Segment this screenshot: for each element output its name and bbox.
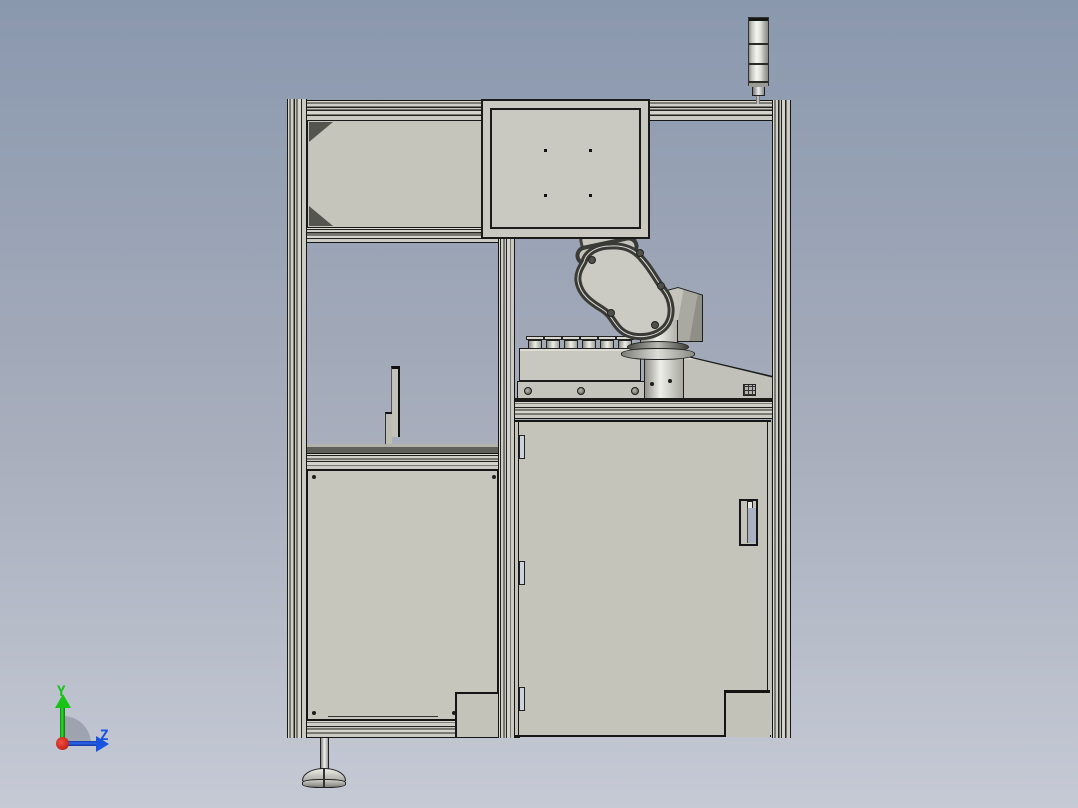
- panel-screw: [492, 475, 496, 479]
- corner-gusset-top: [309, 122, 333, 142]
- tower-flange: [749, 81, 768, 87]
- frame-right-column[interactable]: [772, 100, 791, 738]
- arm-screw: [652, 322, 659, 329]
- screw-hole: [589, 149, 592, 152]
- foot-stem: [320, 738, 329, 771]
- frame-left-column[interactable]: [287, 99, 307, 738]
- fixture-nozzle: [528, 340, 542, 349]
- arm-screw: [658, 283, 665, 290]
- plate-screw: [631, 387, 639, 395]
- screw-hole: [589, 194, 592, 197]
- plate-screw: [524, 387, 532, 395]
- tower-cap-line: [749, 18, 768, 21]
- door-hinge: [519, 561, 525, 585]
- origin-marker: [56, 737, 69, 750]
- door-hinge: [519, 687, 525, 711]
- panel-screw: [312, 711, 316, 715]
- cad-viewport[interactable]: Y Z: [0, 0, 1078, 808]
- signal-tower-rod: [756, 96, 760, 104]
- plate-screw: [577, 387, 585, 395]
- door-handle[interactable]: [739, 499, 758, 546]
- left-lower-panel[interactable]: [307, 470, 498, 720]
- panel-slot-line: [328, 716, 438, 717]
- signal-tower-fitting: [752, 86, 765, 96]
- pedestal-screw: [668, 379, 672, 383]
- corner-gusset-bottom: [309, 206, 333, 226]
- tower-segment-line: [749, 63, 768, 65]
- top-enclosure-box[interactable]: [481, 99, 650, 239]
- screw-hole: [544, 149, 547, 152]
- upper-left-panel[interactable]: [307, 120, 499, 228]
- left-corner-kick-panel[interactable]: [455, 692, 498, 737]
- slope-block[interactable]: [684, 353, 772, 400]
- panel-screw: [312, 475, 316, 479]
- arm-screw: [589, 257, 596, 264]
- enclosure-inner-frame: [490, 108, 641, 229]
- pedestal-screw: [650, 382, 654, 386]
- right-corner-kick-panel[interactable]: [724, 690, 770, 737]
- arm-screw: [637, 250, 644, 257]
- foot-seam: [323, 769, 325, 787]
- fixture-base-plate[interactable]: [517, 381, 646, 399]
- left-mid-beam[interactable]: [307, 227, 499, 243]
- sensor-bracket-tall-plate[interactable]: [391, 366, 400, 437]
- connector-detail: [743, 384, 756, 396]
- tower-segment-line: [749, 43, 768, 45]
- robot-table-beam[interactable]: [515, 401, 772, 419]
- handle-recess: [747, 508, 756, 543]
- left-table-surface[interactable]: [307, 444, 499, 453]
- door-hinge: [519, 435, 525, 459]
- signal-tower[interactable]: [748, 17, 769, 86]
- robot-arm-link[interactable]: [556, 222, 716, 352]
- left-table-beam: [307, 453, 499, 470]
- arm-screw: [608, 310, 615, 317]
- sensor-bracket-short-plate[interactable]: [385, 412, 392, 448]
- screw-hole: [544, 194, 547, 197]
- z-axis-label: Z: [100, 728, 108, 744]
- y-axis-label: Y: [57, 684, 65, 700]
